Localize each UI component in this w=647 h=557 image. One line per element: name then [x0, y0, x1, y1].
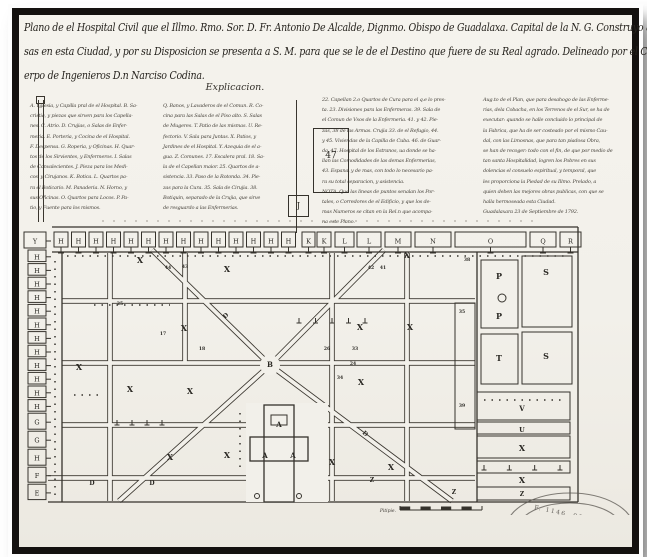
- left-col-letter: H: [34, 376, 40, 384]
- legend-script-line: meria. E. Porteria, y Cocina de el Hospi…: [30, 132, 137, 142]
- pier: [346, 318, 351, 323]
- legend-heading: Explicacion.: [170, 82, 300, 93]
- top-row-letter: H: [76, 238, 82, 246]
- plan-label: B: [267, 360, 273, 369]
- legend-script-line: ra el Boticario. M. Panaderia. N. Horno,…: [30, 183, 137, 193]
- legend-script-line: cina para las Salas de el Piso alto. S. …: [163, 111, 264, 121]
- pier: [507, 465, 512, 470]
- legend-column-1: A. Yglesia, y Capilla pral de el Hospita…: [30, 101, 137, 213]
- plan-label: 41: [380, 265, 386, 271]
- top-row-letter: H: [233, 238, 239, 246]
- plan-label: 34: [337, 375, 343, 381]
- left-col-letter: H: [34, 349, 40, 357]
- left-col-letter: H: [34, 281, 40, 289]
- plan-label: X: [329, 457, 336, 467]
- left-col-letter: Y: [32, 238, 38, 246]
- legend-script-line: se han de recoger: todo con el fin, de q…: [483, 146, 612, 156]
- top-row-letter: O: [488, 238, 493, 246]
- plan-label: A: [261, 451, 268, 460]
- top-row-letter: H: [286, 238, 292, 246]
- top-row-letter: H: [268, 238, 274, 246]
- top-row-letter: H: [111, 238, 117, 246]
- plan-label: 26: [324, 346, 330, 352]
- pier: [297, 318, 302, 323]
- plan-label: A: [289, 451, 296, 460]
- top-row-letter: H: [146, 238, 152, 246]
- plan-label: D: [89, 480, 94, 487]
- plan-label: 17: [160, 331, 166, 337]
- legend-column-2: Q. Banos, y Lavaderos de el Comun. R. Co…: [163, 101, 264, 213]
- pier: [558, 465, 563, 470]
- legend-script-line: cristia, y piezas que sirven para los Ca…: [30, 111, 137, 121]
- plan-label: P: [496, 271, 502, 281]
- title-line-2: sas en esta Ciudad, y por su Disposicion…: [24, 45, 640, 58]
- legend-script-line: executar: quando se halle concluido lo p…: [483, 115, 612, 125]
- plan-label: A: [275, 420, 282, 429]
- plan-label: X: [224, 264, 231, 274]
- plan-label: 38: [464, 257, 470, 263]
- legend-script-line: Botiquin, separado de la Crujia, que sir…: [163, 193, 264, 203]
- plan-label: S: [543, 267, 549, 277]
- top-row-letter: H: [181, 238, 187, 246]
- left-col-letter: G: [34, 437, 39, 445]
- legend-script-line: F. Despensa. G. Roperia, y Oficinas. H. …: [30, 142, 137, 152]
- top-row-letter: H: [216, 238, 222, 246]
- plan-label: 43: [182, 264, 188, 270]
- legend-script-line: de resguardo a las Enfermerias.: [163, 203, 264, 213]
- plan-label: T: [496, 353, 502, 363]
- legend-script-line: zas para la Cura. 35. Sala de Cirujia. 3…: [163, 183, 264, 193]
- legend-script-line: les proporciona la Piedad de su Illmo. P…: [483, 177, 612, 187]
- legend-script-line: nes. C. Atrio. D. Crujias, o Salas de En…: [30, 121, 137, 131]
- top-row-letter: H: [58, 238, 64, 246]
- legend-script-line: dal, con las Limosnas, que para tan piad…: [483, 136, 612, 146]
- top-row-letter: N: [430, 238, 436, 246]
- plan-label: 24: [350, 361, 356, 367]
- plan-label: X: [167, 452, 174, 462]
- plan-label: 39: [459, 403, 465, 409]
- legend-script-line: sus Oficinas. O. Quartos para Locos. P. …: [30, 193, 137, 203]
- long-hall: [455, 303, 475, 429]
- top-row-letter: H: [93, 238, 99, 246]
- legend-script-line: tos de los Sirvientes, y Enfermeros. I. …: [30, 152, 137, 162]
- plan-label: 42: [368, 265, 374, 271]
- left-col-letter: F: [35, 472, 40, 480]
- left-col-letter: H: [34, 389, 40, 397]
- plan-label: 33: [352, 346, 358, 352]
- legend-script-line: quien deben las mejores obras publicas, …: [483, 187, 612, 197]
- legend-script-line: de Convalecientes. J. Pieza para los Med…: [30, 162, 137, 172]
- legend-script-line: tan santa Hospitalidad, logren los Pobre…: [483, 156, 612, 166]
- left-col-letter: H: [34, 403, 40, 411]
- plan-label: X: [76, 362, 83, 372]
- pier: [482, 465, 487, 470]
- legend-script-line: 22. Capellan 2.o Quartos de Cura para el…: [322, 95, 446, 105]
- plan-label: 35: [459, 309, 465, 315]
- top-row-letter: K: [306, 238, 311, 246]
- aqueduct-head: [36, 96, 45, 104]
- top-row-letter: R: [568, 238, 574, 246]
- legend-script-line: Jardines de el Hospital. Y. Azequia de e…: [163, 142, 264, 152]
- legend-script-line: dolencias el consuelo espiritual, y temp…: [483, 166, 612, 176]
- left-col-letter: H: [34, 308, 40, 316]
- plan-label: X: [127, 384, 134, 394]
- scale-label: Pitipie.: [379, 508, 397, 514]
- plan-label: 44: [165, 265, 171, 271]
- top-row-letter: Q: [540, 238, 545, 246]
- patio-fountain: [498, 294, 506, 302]
- plan-label: P: [496, 311, 502, 321]
- legend-script-line: de Mugeres. T. Patio de las mismas. U. R…: [163, 121, 264, 131]
- pier: [363, 318, 368, 323]
- left-col-letter: H: [34, 455, 40, 463]
- top-row-letter: H: [128, 238, 134, 246]
- plan-label: S: [543, 351, 549, 361]
- plan-label: X: [388, 462, 395, 472]
- left-col-letter: H: [34, 253, 40, 261]
- legend-script-line: sistencia. 33. Paso de la Rotonda. 34. P…: [163, 172, 264, 182]
- chapel-complex: [246, 403, 328, 502]
- top-row-letter: H: [163, 238, 169, 246]
- framed-plan-photo: Plano de el Hospital Civil que el Illmo.…: [12, 8, 639, 554]
- legend-column-4: Aug.to de el Plan, que para desahogo de …: [483, 95, 612, 217]
- legend-script-line: la de el Capellan maior. 25. Quartos de …: [163, 162, 264, 172]
- left-col-letter: H: [34, 362, 40, 370]
- legend-script-line: el Comun de Vsos de la Enfermeria. 41. y…: [322, 115, 446, 125]
- legend-script-line: cos, y Cirujanos. K. Botica. L. Quartos …: [30, 172, 137, 182]
- legend-script-line: halla hermoseada esta Ciudad.: [483, 197, 612, 207]
- top-row-letter: H: [251, 238, 257, 246]
- plan-label: X: [224, 450, 231, 460]
- aqueduct-line: [38, 100, 44, 222]
- plan-label: X: [519, 443, 526, 453]
- room-j-box: J: [288, 195, 309, 217]
- legend-script-line: tales, o Corredores de el Edificio, y qu…: [322, 197, 446, 207]
- title-line-1: Plano de el Hospital Civil que el Illmo.…: [24, 21, 640, 34]
- legend-script-line: rias, dela Cobacha, en los Terrenos de e…: [483, 105, 612, 115]
- scale-bar: Pitipie.: [379, 506, 482, 514]
- top-row-letter: H: [198, 238, 204, 246]
- left-col-letter: H: [34, 267, 40, 275]
- plan-label: D: [149, 480, 154, 487]
- legend-script-line: Q. Banos, y Lavaderos de el Comun. R. Co…: [163, 101, 264, 111]
- plan-label: X: [358, 377, 365, 387]
- legend-script-line: gua. Z. Comunes. 17. Escalera pral. 18. …: [163, 152, 264, 162]
- left-col-letter: H: [34, 294, 40, 302]
- plan-label: X: [407, 322, 414, 332]
- left-col-letter: G: [34, 419, 39, 427]
- plan-label: Z: [520, 491, 525, 498]
- plan-label: Z: [452, 489, 457, 496]
- legend-script-line: Aug.to de el Plan, que para desahogo de …: [483, 95, 612, 105]
- legend-script-line: tio, y Fuente para los mismos.: [30, 203, 137, 213]
- top-row-letter: L: [367, 238, 372, 246]
- plan-label: X: [404, 250, 411, 260]
- plan-label: X: [519, 475, 526, 485]
- left-col-letter: E: [35, 489, 40, 497]
- top-row-letter: K: [322, 238, 327, 246]
- stamp-number: F. 1146. 90: [534, 504, 585, 515]
- left-col-letter: H: [34, 321, 40, 329]
- top-row-letter: M: [395, 238, 402, 246]
- top-row-letter: L: [342, 238, 347, 246]
- room-47-box: 47: [313, 128, 349, 193]
- plan-label: X: [137, 255, 144, 265]
- title-line-3: erpo de Ingenieros D.n Narciso Codina.: [24, 69, 640, 82]
- left-col-letter: H: [34, 335, 40, 343]
- legend-script-line: fectorio. V. Sala para Juntas. X. Patios…: [163, 132, 264, 142]
- legend-script-line: ta. 23. Divisiones para las Enfermeras. …: [322, 105, 446, 115]
- plan-label: U: [519, 426, 525, 434]
- plan-label: V: [518, 404, 525, 413]
- plan-label: 25: [117, 301, 123, 307]
- plan-label: 18: [199, 346, 205, 352]
- hospital-plan-drawing: Pitipie. F. 1146. 90 HHHHHHHHHHHHHHKKLLM…: [22, 215, 634, 515]
- plan-label: X: [181, 323, 188, 333]
- plan-label: X: [187, 386, 194, 396]
- right-wing-rooms: [455, 256, 572, 500]
- pier: [532, 465, 537, 470]
- legend-script-line: la Fabrica, que ha de ser costeado por e…: [483, 126, 612, 136]
- legend-script-line: A. Yglesia, y Capilla pral de el Hospita…: [30, 101, 137, 111]
- plan-label: Z: [370, 477, 375, 484]
